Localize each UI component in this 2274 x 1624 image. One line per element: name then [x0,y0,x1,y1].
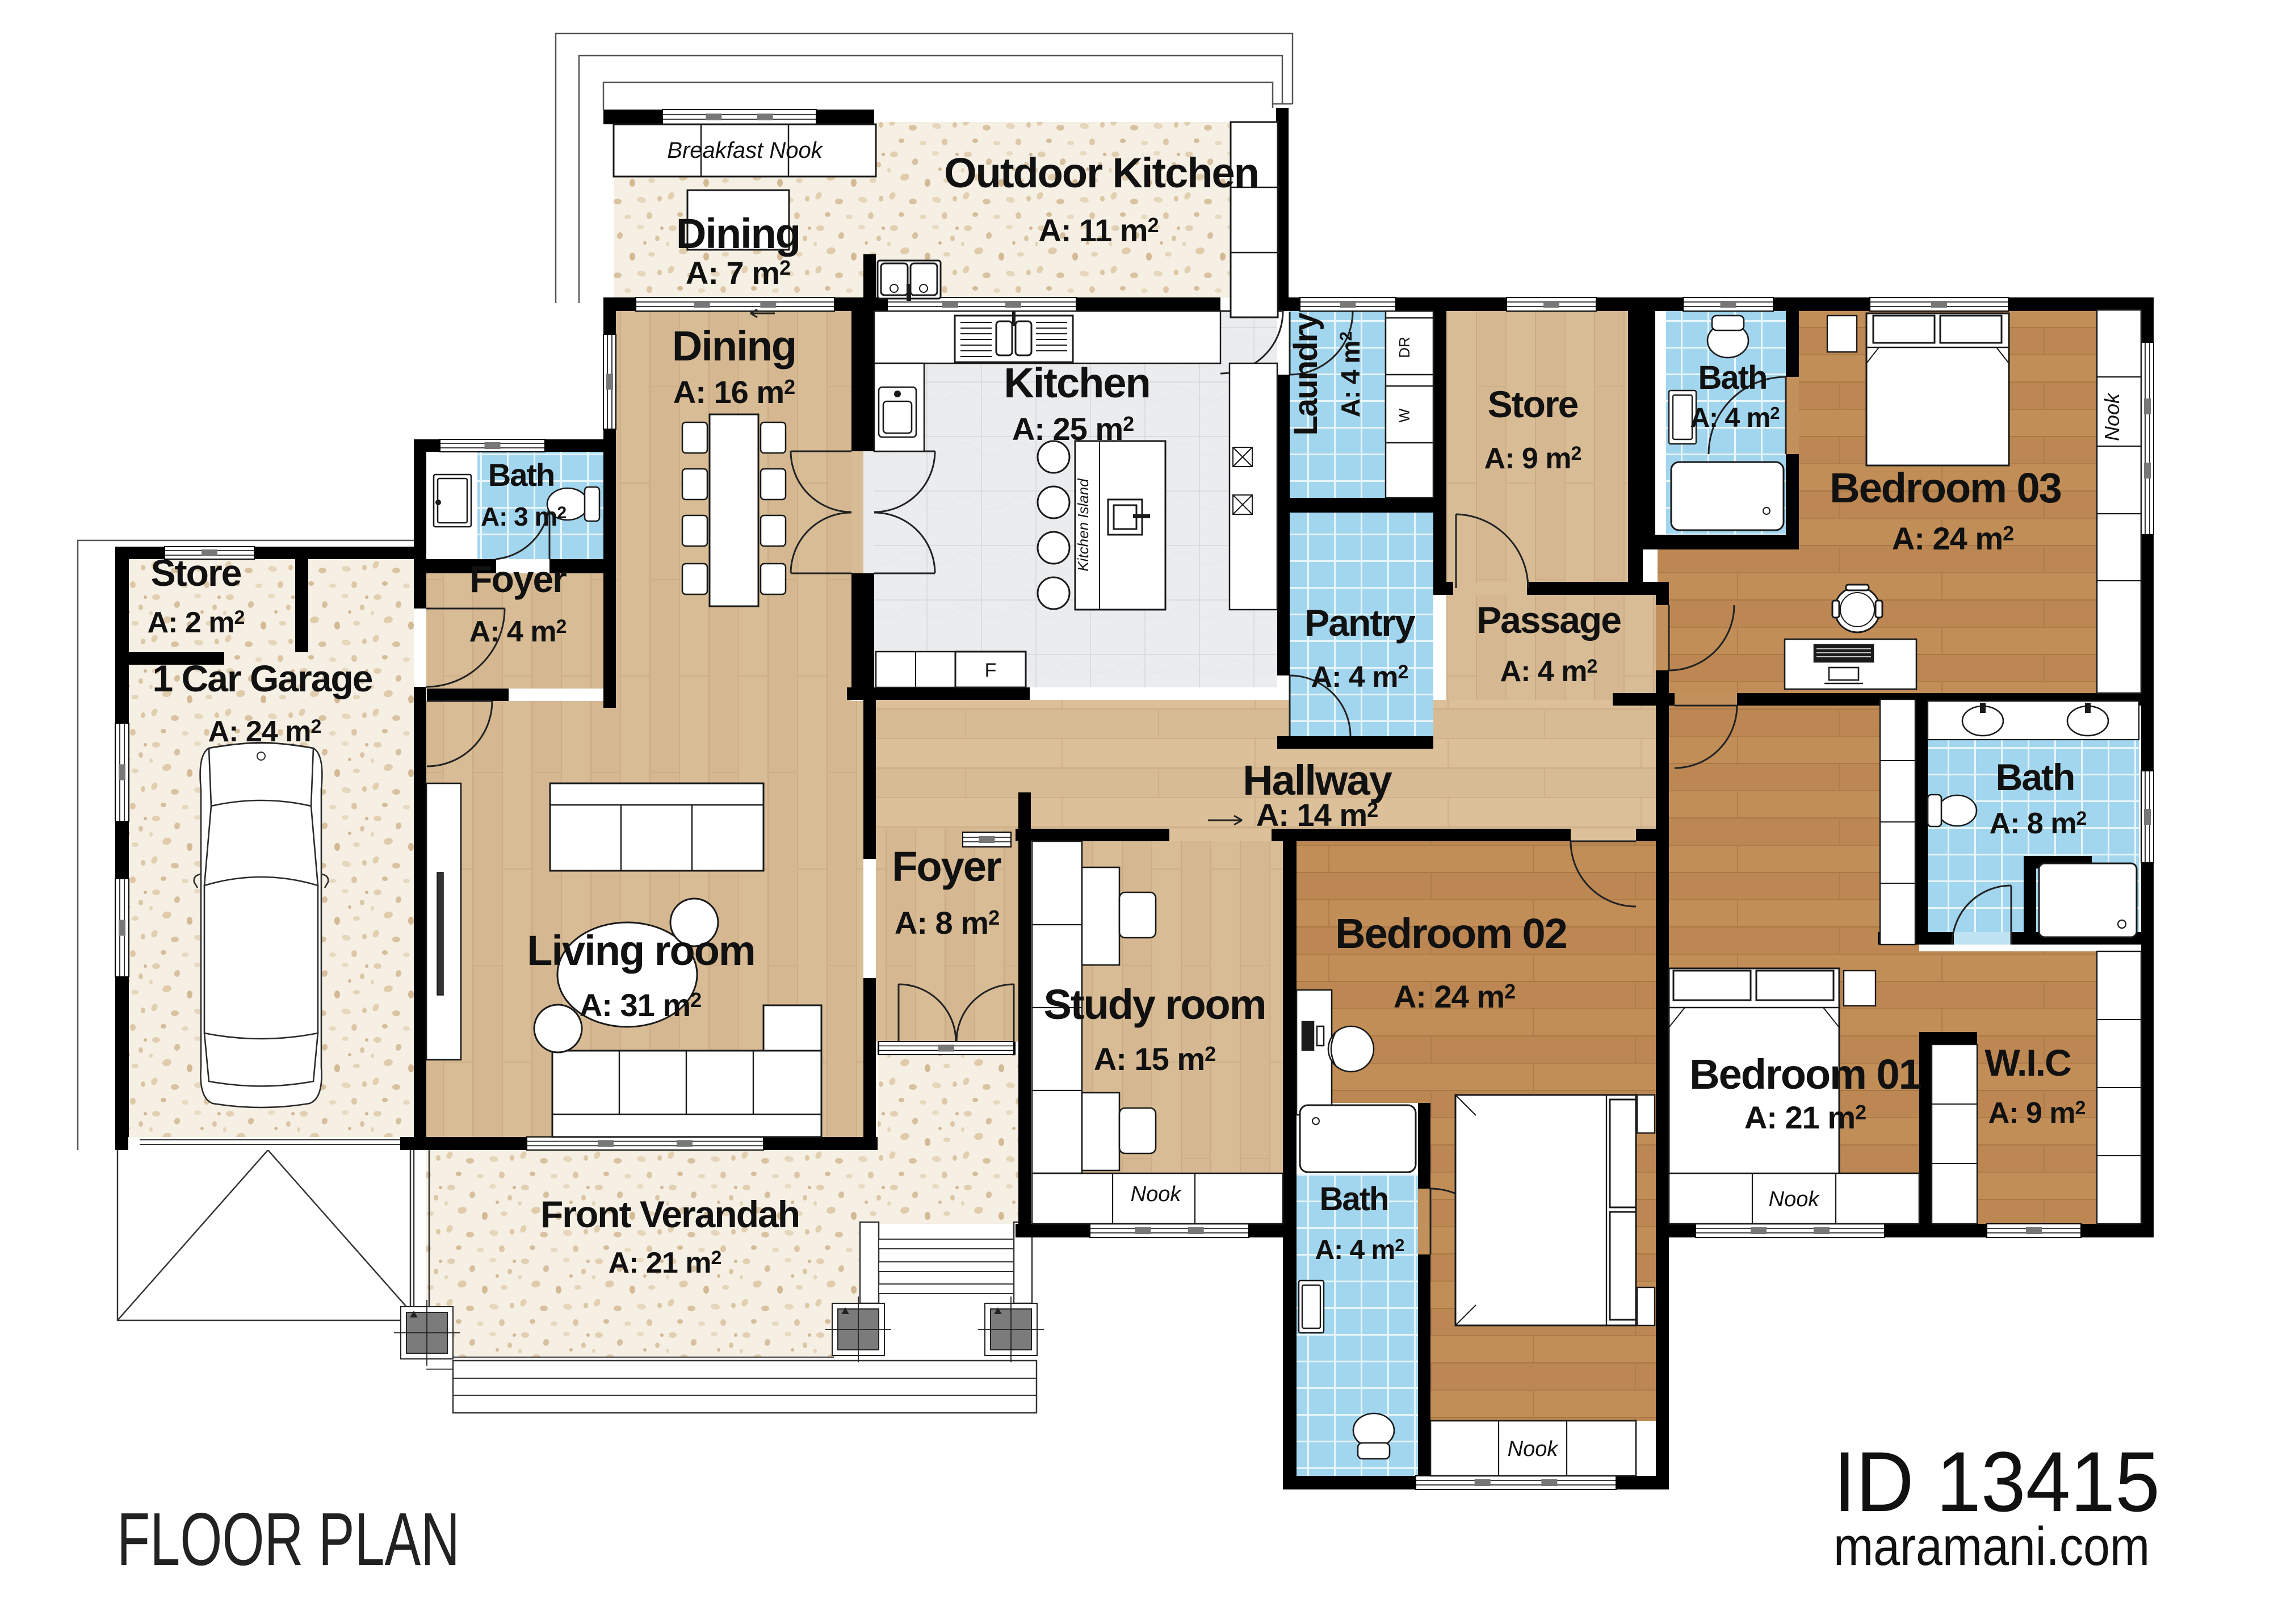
svg-text:A: 7 m2: A: 7 m2 [686,255,790,291]
svg-text:Laundry: Laundry [1287,313,1324,436]
svg-text:Passage: Passage [1476,599,1621,641]
svg-text:A: 9 m2: A: 9 m2 [1484,442,1581,475]
svg-text:F: F [985,660,997,681]
svg-text:Nook: Nook [1508,1437,1559,1461]
svg-text:Bedroom 03: Bedroom 03 [1830,464,2061,511]
svg-text:A: 8 m2: A: 8 m2 [895,905,999,941]
svg-text:A: 4 m2: A: 4 m2 [1311,661,1408,694]
svg-text:A: 24 m2: A: 24 m2 [208,715,321,748]
svg-text:Foyer: Foyer [469,558,567,600]
svg-text:A: 16 m2: A: 16 m2 [673,374,795,410]
svg-text:A: 21 m2: A: 21 m2 [609,1247,721,1279]
svg-text:Bath: Bath [1996,756,2075,798]
svg-text:Foyer: Foyer [892,843,1001,890]
svg-text:A: 4 m2: A: 4 m2 [1500,655,1597,688]
svg-text:A: 2 m2: A: 2 m2 [148,606,245,639]
svg-text:Bath: Bath [1320,1181,1388,1218]
svg-text:A: 11 m2: A: 11 m2 [1038,212,1158,248]
svg-text:Store: Store [1488,383,1578,425]
svg-text:Nook: Nook [1131,1182,1182,1206]
svg-text:A: 3 m2: A: 3 m2 [481,502,567,531]
svg-text:ID 13415: ID 13415 [1834,1434,2160,1529]
svg-text:DR: DR [1396,337,1413,358]
svg-text:Dining: Dining [672,322,796,370]
svg-text:A: 9 m2: A: 9 m2 [1988,1097,2086,1130]
svg-text:W: W [1396,408,1413,422]
svg-text:W.I.C: W.I.C [1984,1042,2071,1084]
svg-text:Front Verandah: Front Verandah [540,1193,799,1235]
svg-text:A: 25 m2: A: 25 m2 [1012,411,1134,447]
svg-text:maramani.com: maramani.com [1834,1516,2150,1577]
svg-text:A: 15 m2: A: 15 m2 [1094,1041,1215,1077]
svg-text:Dining: Dining [676,210,800,257]
svg-text:Bedroom 01: Bedroom 01 [1689,1051,1921,1098]
svg-text:Bedroom 02: Bedroom 02 [1335,910,1567,957]
svg-text:Store: Store [151,552,241,594]
svg-text:A: 4 m2: A: 4 m2 [1315,1235,1404,1265]
svg-text:A: 4 m2: A: 4 m2 [1336,332,1365,418]
svg-text:Bath: Bath [1698,359,1767,396]
svg-text:A: 4 m2: A: 4 m2 [469,615,567,648]
svg-text:1 Car Garage: 1 Car Garage [153,657,372,699]
svg-text:FLOOR PLAN: FLOOR PLAN [117,1497,460,1581]
svg-text:Study room: Study room [1043,981,1265,1028]
svg-text:Bath: Bath [488,457,554,493]
svg-text:Kitchen Island: Kitchen Island [1075,478,1092,572]
svg-text:Living room: Living room [527,927,754,974]
svg-text:Kitchen: Kitchen [1004,359,1149,406]
svg-text:A: 24 m2: A: 24 m2 [1394,979,1515,1014]
svg-text:Outdoor Kitchen: Outdoor Kitchen [944,149,1258,196]
svg-text:Pantry: Pantry [1304,602,1416,644]
svg-text:Nook: Nook [1769,1187,1820,1211]
svg-text:A: 31 m2: A: 31 m2 [580,987,701,1023]
svg-text:A: 24 m2: A: 24 m2 [1892,521,2013,556]
svg-text:A: 21 m2: A: 21 m2 [1744,1100,1866,1135]
svg-text:Nook: Nook [2100,392,2124,441]
svg-text:A: 8 m2: A: 8 m2 [1990,807,2087,840]
svg-text:A: 4 m2: A: 4 m2 [1690,403,1780,433]
svg-text:A: 14 m2: A: 14 m2 [1256,797,1378,833]
svg-text:Breakfast Nook: Breakfast Nook [667,138,823,163]
